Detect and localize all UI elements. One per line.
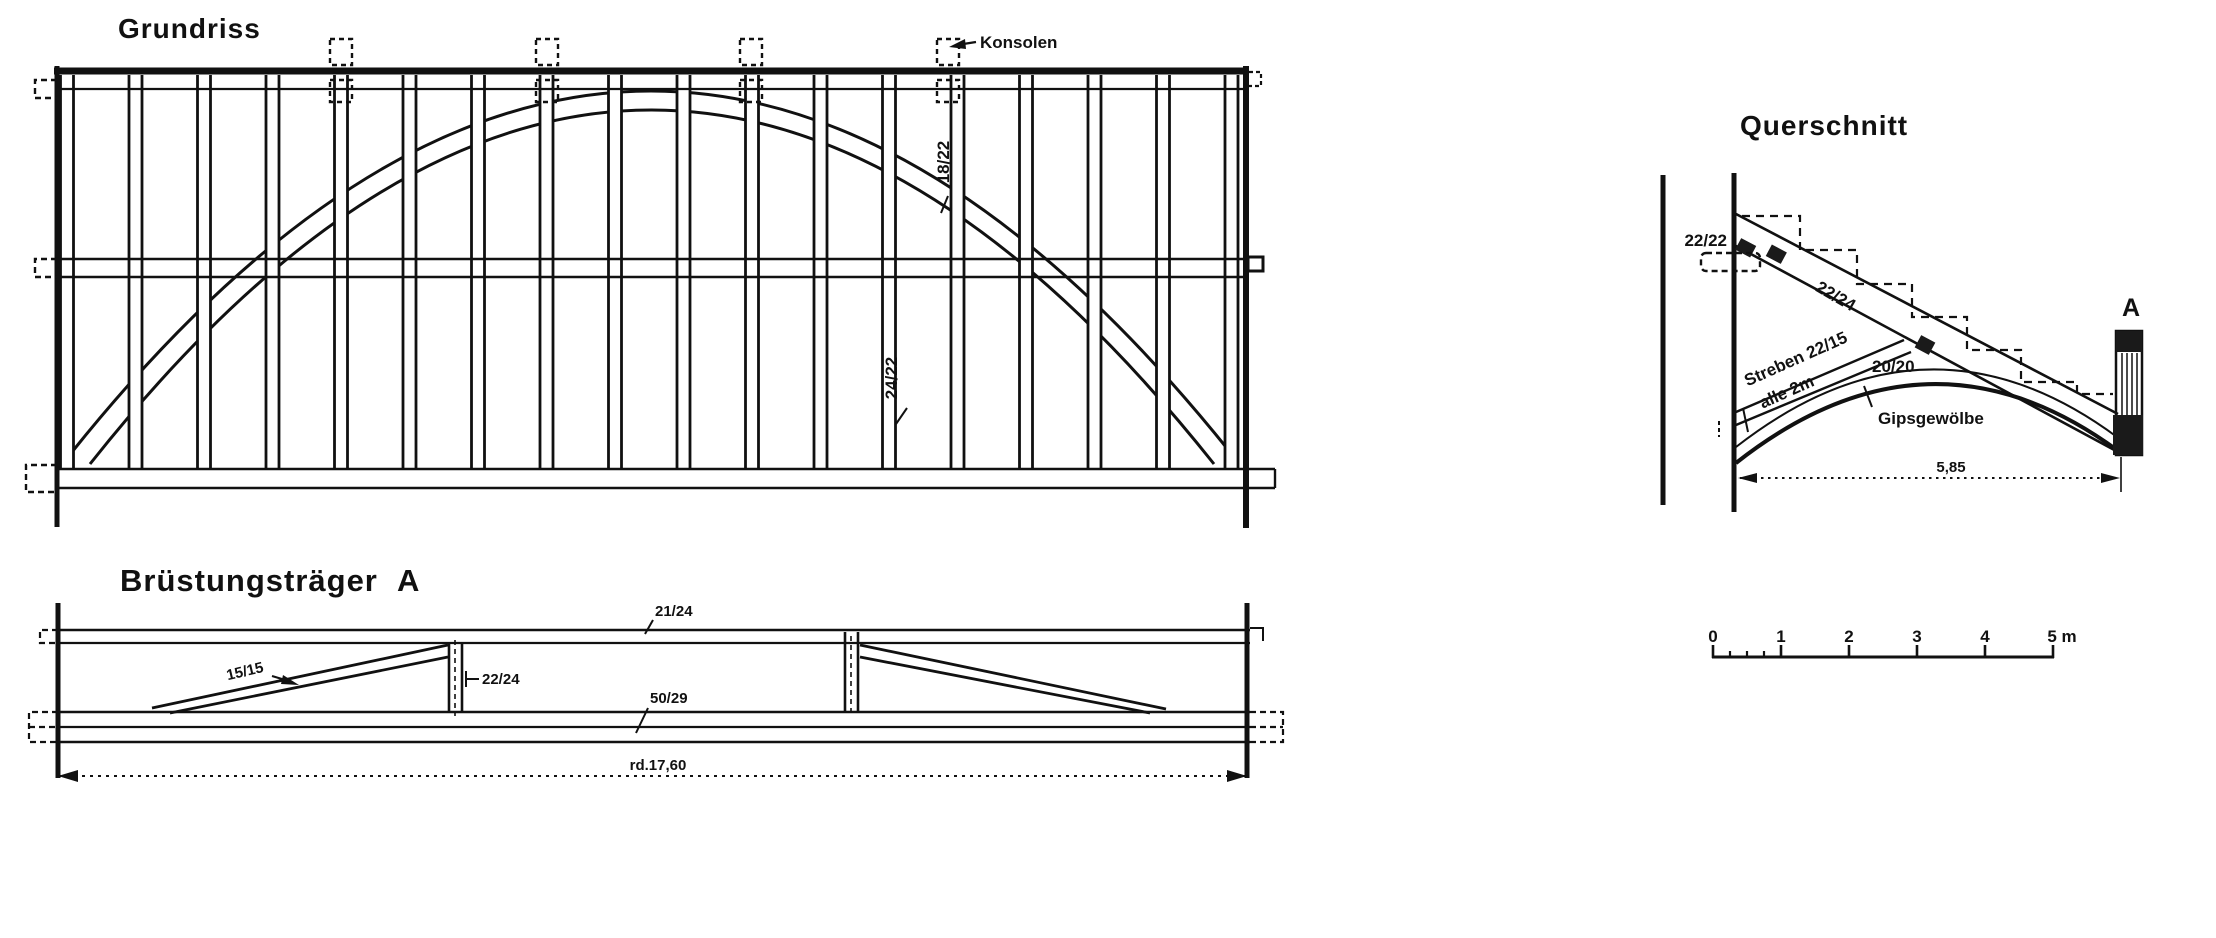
bruestungstraeger-mark: A	[397, 563, 420, 598]
girder-chords	[29, 628, 1283, 742]
stud	[335, 75, 348, 468]
stud	[746, 75, 759, 468]
konsolen-arrowhead	[949, 39, 966, 49]
section-wall	[1663, 173, 1734, 512]
bruestungstraeger-title: Brüstungsträger	[120, 563, 378, 598]
stud	[883, 75, 896, 468]
section-span-dimension: 5,85	[1738, 457, 2121, 492]
stud	[472, 75, 485, 468]
arch-size-label: 18/22	[934, 141, 953, 184]
grundriss-side-lugs	[35, 72, 1263, 277]
stud	[129, 75, 142, 468]
stud	[540, 75, 553, 468]
scale-label-4: 4	[1980, 627, 1990, 646]
stud	[677, 75, 690, 468]
grundriss-rails	[57, 89, 1246, 277]
diagonal-size-label: 15/15	[225, 659, 265, 684]
left-bottom-lug	[26, 465, 57, 492]
section-mark-a: A	[2122, 294, 2140, 322]
technical-drawing-sheet: Grundriss	[0, 0, 2216, 938]
stud	[61, 75, 74, 468]
stud	[1088, 75, 1101, 468]
stud	[403, 75, 416, 468]
vault-label: Gipsgewölbe	[1878, 409, 1984, 428]
bottom-chord-size-label: 50/29	[650, 690, 688, 707]
dim-arrow-right	[2101, 473, 2120, 483]
scale-label-5m: 5 m	[2047, 627, 2076, 646]
grundriss-bottom-band	[26, 465, 1275, 492]
bruestungstraeger-view: Brüstungsträger A	[29, 563, 1283, 782]
grundriss-frame	[54, 66, 1249, 528]
scale-bar: 0 1 2 3 4 5 m	[1708, 627, 2076, 658]
grundriss-title: Grundriss	[118, 13, 261, 44]
section-labels: 22/22 22/24 Streben 22/15 alle 2m 20/20 …	[1684, 231, 2140, 432]
stud	[951, 75, 964, 468]
konsole-mark	[536, 39, 558, 65]
strut-head-size-label: 20/20	[1872, 357, 1915, 376]
girder-span-dimension: rd.17,60	[58, 757, 1247, 782]
konsole-mark	[937, 39, 959, 65]
konsole-pocket-dashed	[1701, 253, 1760, 271]
konsolen-callout: Konsolen	[949, 33, 1057, 52]
span-dimension-label: rd.17,60	[630, 757, 687, 774]
post-size-label: 22/24	[482, 671, 520, 688]
top-chord-size-label: 21/24	[655, 603, 693, 620]
querschnitt-title: Querschnitt	[1740, 110, 1908, 141]
konsole-mark	[330, 39, 352, 65]
scale-label-3: 3	[1912, 627, 1921, 646]
stud	[266, 75, 279, 468]
querschnitt-view: Querschnitt	[1663, 110, 2143, 512]
scale-label-0: 0	[1708, 627, 1717, 646]
wall-timber-size-label: 22/22	[1684, 231, 1727, 250]
stud	[1225, 75, 1238, 468]
rafter-size-label: 22/24	[1813, 277, 1860, 315]
stud-size-label: 24/22	[882, 357, 901, 400]
stud	[609, 75, 622, 468]
section-span-label: 5,85	[1936, 459, 1965, 476]
stud	[1020, 75, 1033, 468]
konsolen-label: Konsolen	[980, 33, 1057, 52]
drawing-canvas: Grundriss	[0, 0, 2216, 938]
stud	[1157, 75, 1170, 468]
scale-label-1: 1	[1776, 627, 1785, 646]
girder-a-section	[2113, 331, 2143, 455]
dim-arrow-right	[1227, 770, 1247, 782]
stud	[814, 75, 827, 468]
scale-label-2: 2	[1844, 627, 1853, 646]
grundriss-view: Grundriss	[26, 13, 1275, 528]
girder-labels: 15/15 22/24 21/24 50/29	[225, 603, 693, 733]
stud	[198, 75, 211, 468]
konsole-mark	[740, 39, 762, 65]
dim-arrow-left	[58, 770, 78, 782]
dim-arrow-left	[1738, 473, 1757, 483]
